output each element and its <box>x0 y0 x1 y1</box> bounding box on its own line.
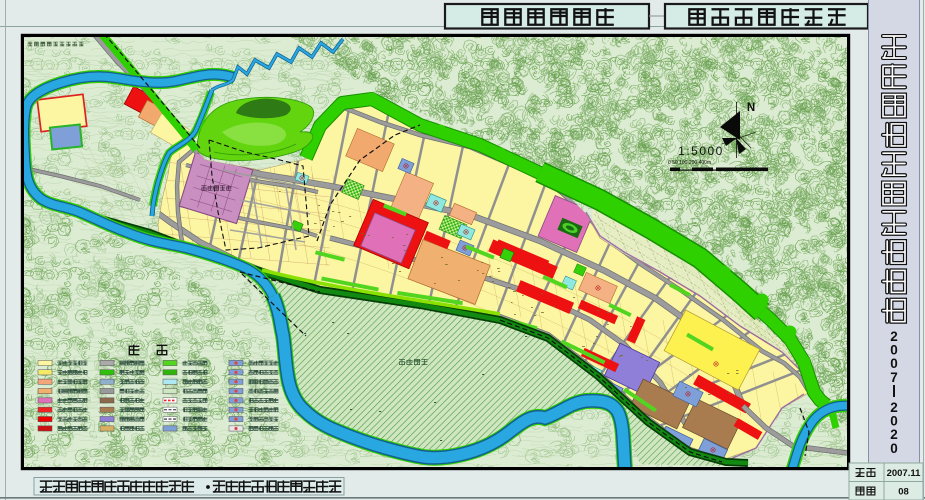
svg-text:7: 7 <box>890 370 898 385</box>
svg-text:2007.11: 2007.11 <box>887 468 922 479</box>
svg-text:0 50 100 200: 0 50 100 200 400m <box>668 160 711 166</box>
svg-text:0: 0 <box>890 441 898 456</box>
svg-text:N: N <box>747 102 755 114</box>
svg-text:08: 08 <box>898 487 909 498</box>
svg-text:1:5000: 1:5000 <box>678 144 724 158</box>
